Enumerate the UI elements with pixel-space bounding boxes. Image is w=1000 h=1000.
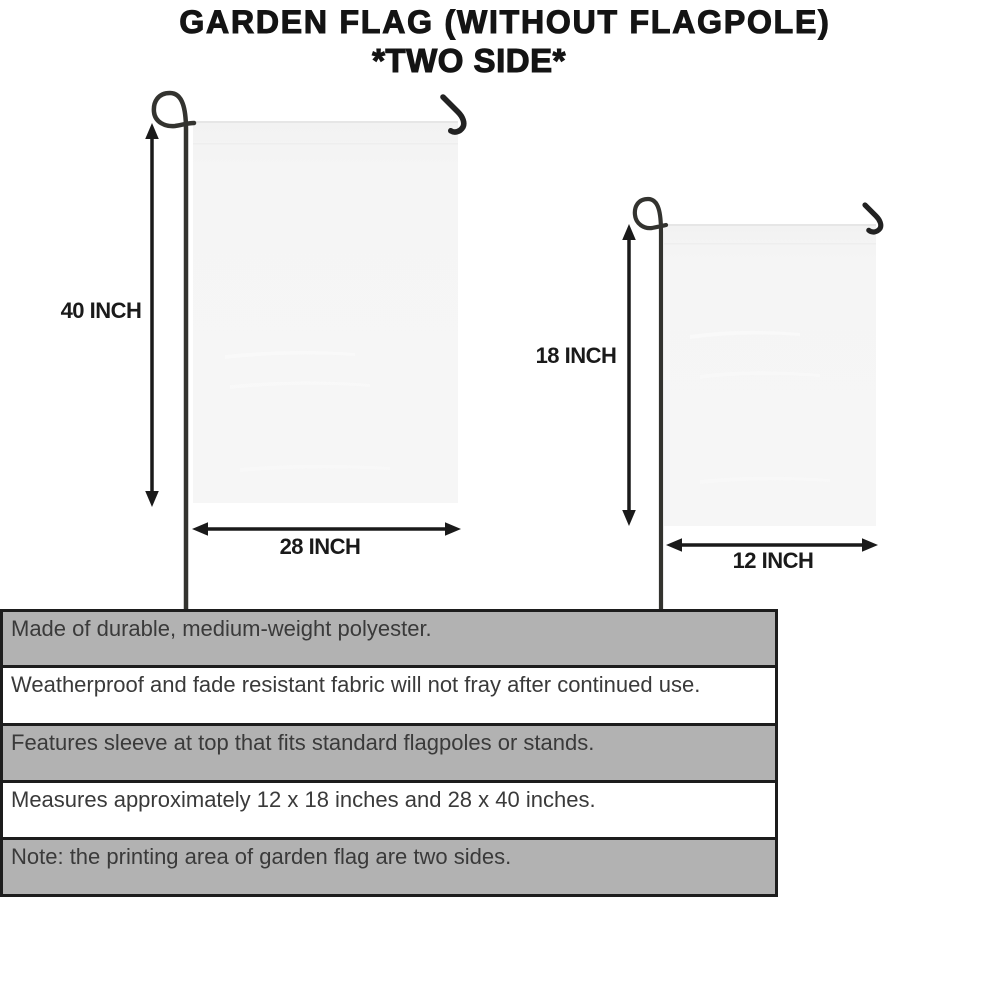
svg-text:12 INCH: 12 INCH [733, 548, 814, 573]
svg-text:28 INCH: 28 INCH [280, 534, 361, 559]
svg-text:18 INCH: 18 INCH [536, 343, 617, 368]
svg-text:40 INCH: 40 INCH [61, 298, 142, 323]
